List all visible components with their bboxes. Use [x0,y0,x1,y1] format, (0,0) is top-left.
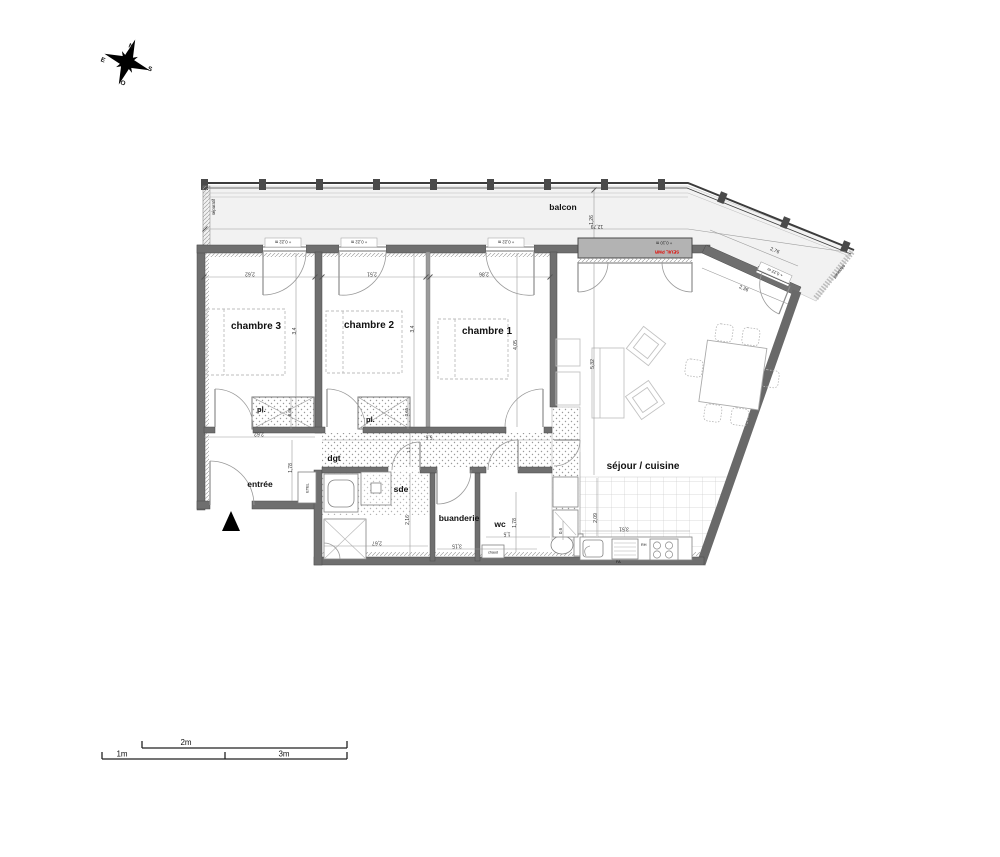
floor-plan-drawing: séparatif séparatif balcon 12,79 1,26 [0,0,1000,857]
dim-bedroom1-width: 2,86 [479,271,489,277]
closet3-label: pl. [257,405,266,414]
sill-label-bedroom2: + 0,22 m [350,240,367,245]
kitchen-counter: FA RH [580,537,692,564]
wc-label: wc [493,519,506,529]
dim-toilet-depth: 1,78 [512,518,518,528]
fridge-label: RH [641,543,647,547]
water-heater-label: chaud [488,551,498,555]
dim-bathroom-depth: 2,16 [405,515,411,525]
hallway-label: dgt [327,453,340,463]
balcony-separator-left [203,186,210,248]
compass-o: O [119,79,126,87]
balcony-label: balcon [549,202,576,212]
dim-closet3-depth: 0,66 [287,407,292,416]
compass-rose: N E S O [96,31,158,93]
dim-balcony-depth: 1,26 [589,215,595,225]
dim-toilet-width: 1,5 [503,531,510,537]
scale-3m: 3m [278,750,289,759]
duct-boxes [553,477,578,537]
compass-e: E [100,56,107,64]
bathtub-shower [324,519,366,559]
closet-bedroom2 [358,397,410,429]
dim-kitchen-width: 3,51 [619,526,629,532]
water-heater: chaud [482,545,504,558]
laundry-label: buanderie [439,513,480,523]
shower [361,472,391,505]
dim-bedroom1-depth: 4,05 [513,340,519,350]
dim-bathroom-width: 2,67 [372,540,382,546]
dim-bedroom3-width: 2,62 [245,271,255,277]
threshold-pmr-label: SEUIL PMR [654,250,679,255]
scale-1m: 1m [116,750,127,759]
dim-hallway-width: 1,1 [406,446,411,453]
sill-label-bedroom3: + 0,22 m [274,240,291,245]
dim-laundry-width: 3,15 [452,543,462,549]
entry-arrow [222,511,240,531]
bay-level-label: + 0,10 m [655,241,672,246]
sill-label-bedroom1: + 0,22 m [497,240,514,245]
dim-hallway-length: 5,6 [425,434,432,440]
dim-kitchen-depth: 2,09 [593,513,599,523]
dim-kitchen-offset: 0,6 [558,527,563,534]
separator-left-label: séparatif [211,198,216,215]
living-kitchen-label: séjour / cuisine [607,461,680,472]
compass-s: S [147,65,154,73]
dim-bedroom2-depth: 3,4 [410,325,416,332]
etel-cabinet: ETEL [298,472,316,503]
dim-bedroom2-width: 2,51 [367,271,377,277]
stove [650,539,678,560]
entry-label: entrée [247,479,273,489]
etel-label: ETEL [306,483,310,493]
bedroom1-label: chambre 1 [462,326,512,337]
floor-plan-page: séparatif séparatif balcon 12,79 1,26 [0,0,1000,857]
scale-bar: 2m 1m 3m [102,738,347,759]
dim-entry-width: 2,62 [254,431,264,437]
dim-entry-depth: 1,78 [288,463,294,473]
dim-living-depth: 5,32 [590,359,596,369]
dim-bedroom3-depth: 3,4 [292,327,298,334]
bathroom-label: sde [394,484,409,494]
kitchen-sink [583,540,603,557]
washbasin [324,474,358,512]
scale-2m: 2m [180,738,191,747]
closet2-label: pl. [366,415,375,424]
dim-closet2-depth: 0,65 [404,407,409,416]
dishwasher-label: FA [616,560,621,564]
bedroom3-label: chambre 3 [231,321,281,332]
bedroom2-label: chambre 2 [344,320,394,331]
